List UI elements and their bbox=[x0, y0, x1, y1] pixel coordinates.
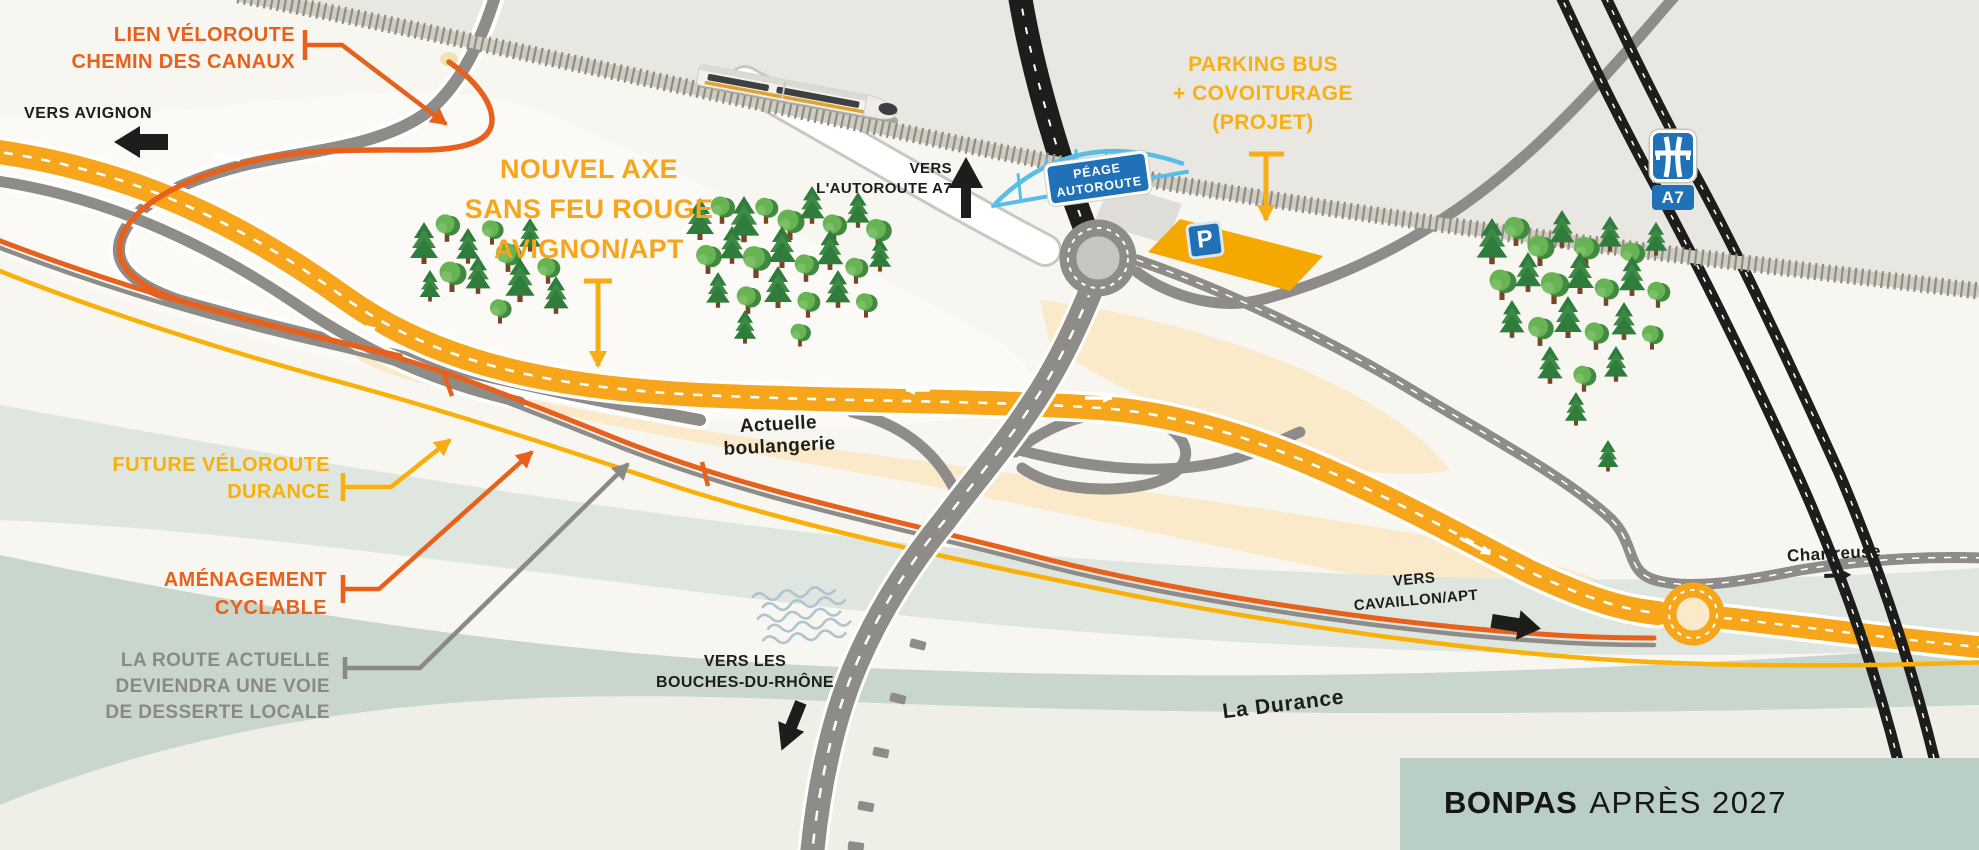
conifer-tree-icon bbox=[1554, 296, 1582, 338]
conifer-tree-icon bbox=[1515, 252, 1542, 292]
wave-line bbox=[757, 607, 841, 624]
label-line: + COVOITURAGE bbox=[1123, 79, 1403, 108]
label-line: LIEN VÉLOROUTE bbox=[10, 22, 295, 49]
label-line: FUTURE VÉLOROUTE bbox=[58, 452, 330, 479]
wave-line bbox=[767, 617, 851, 634]
deciduous-tree-icon bbox=[1585, 322, 1609, 349]
label-line: BOUCHES-DU-RHÔNE bbox=[645, 672, 845, 693]
label-line: (PROJET) bbox=[1123, 108, 1403, 137]
label-nouvel-axe: NOUVEL AXE SANS FEU ROUGE AVIGNON/APT bbox=[429, 149, 749, 269]
label-line: DURANCE bbox=[58, 479, 330, 506]
conifer-tree-icon bbox=[1604, 346, 1628, 382]
label-line: CYCLABLE bbox=[59, 594, 327, 622]
deciduous-tree-icon bbox=[1595, 278, 1619, 305]
title-bonpas: BONPAS bbox=[1444, 785, 1577, 820]
toll-roundabout bbox=[1068, 228, 1128, 288]
deciduous-tree-icon bbox=[1490, 270, 1517, 301]
motorway-pictogram-icon bbox=[1650, 130, 1696, 182]
deciduous-tree-icon bbox=[1528, 317, 1554, 346]
conifer-tree-icon bbox=[1619, 256, 1646, 296]
label-line: AMÉNAGEMENT bbox=[59, 566, 327, 594]
bonpas-map: LIEN VÉLOROUTE CHEMIN DES CANAUX VERS AV… bbox=[0, 0, 1979, 850]
label-vers-avignon: VERS AVIGNON bbox=[24, 104, 184, 125]
label-line: DEVIENDRA UNE VOIE bbox=[54, 674, 330, 700]
label-vers-bouches: VERS LES BOUCHES-DU-RHÔNE bbox=[645, 651, 845, 693]
deciduous-tree-icon bbox=[1647, 282, 1670, 308]
conifer-tree-icon bbox=[1537, 346, 1562, 384]
cavaillon-roundabout bbox=[1669, 590, 1717, 638]
label-line: AVIGNON/APT bbox=[429, 229, 749, 269]
a7-number-plate: A7 bbox=[1652, 185, 1694, 210]
label-line: VERS bbox=[792, 159, 952, 179]
title-box: BONPASAPRÈS 2027 bbox=[1400, 758, 1979, 850]
parking-p-sign: P bbox=[1185, 220, 1225, 260]
title-apres: APRÈS 2027 bbox=[1589, 785, 1787, 820]
conifer-tree-icon bbox=[1565, 392, 1587, 426]
a7-motorway-sign: A7 bbox=[1650, 130, 1700, 210]
parking-lot bbox=[1148, 219, 1323, 291]
label-route-actuelle: LA ROUTE ACTUELLE DEVIENDRA UNE VOIE DE … bbox=[54, 648, 330, 726]
conifer-tree-icon bbox=[1499, 300, 1524, 338]
label-vers-autoroute: VERS L'AUTOROUTE A7 bbox=[792, 159, 952, 199]
label-line: NOUVEL AXE bbox=[429, 149, 749, 189]
label-line: PARKING BUS bbox=[1123, 50, 1403, 79]
label-future-veloroute: FUTURE VÉLOROUTE DURANCE bbox=[58, 452, 330, 506]
label-line: LA ROUTE ACTUELLE bbox=[54, 648, 330, 674]
label-parking-bus: PARKING BUS + COVOITURAGE (PROJET) bbox=[1123, 50, 1403, 137]
orange-tick-2 bbox=[702, 462, 708, 486]
label-amenagement-cyclable: AMÉNAGEMENT CYCLABLE bbox=[59, 566, 327, 622]
label-actuelle-boulangerie: Actuelle boulangerie bbox=[698, 410, 860, 462]
label-line: CHEMIN DES CANAUX bbox=[10, 49, 295, 76]
conifer-tree-icon bbox=[1598, 440, 1619, 472]
wave-line bbox=[762, 628, 846, 645]
label-line: SANS FEU ROUGE bbox=[429, 189, 749, 229]
label-line: DE DESSERTE LOCALE bbox=[54, 700, 330, 726]
deciduous-tree-icon bbox=[1541, 272, 1569, 304]
conifer-tree-icon bbox=[869, 238, 891, 272]
deciduous-tree-icon bbox=[1642, 325, 1664, 349]
title-text: BONPASAPRÈS 2027 bbox=[1400, 758, 1979, 821]
label-line: VERS LES bbox=[645, 651, 845, 672]
deciduous-tree-icon bbox=[1573, 366, 1596, 392]
label-line: L'AUTOROUTE A7 bbox=[792, 179, 952, 199]
conifer-tree-icon bbox=[1611, 302, 1636, 340]
label-lien-veloroute: LIEN VÉLOROUTE CHEMIN DES CANAUX bbox=[10, 22, 295, 76]
